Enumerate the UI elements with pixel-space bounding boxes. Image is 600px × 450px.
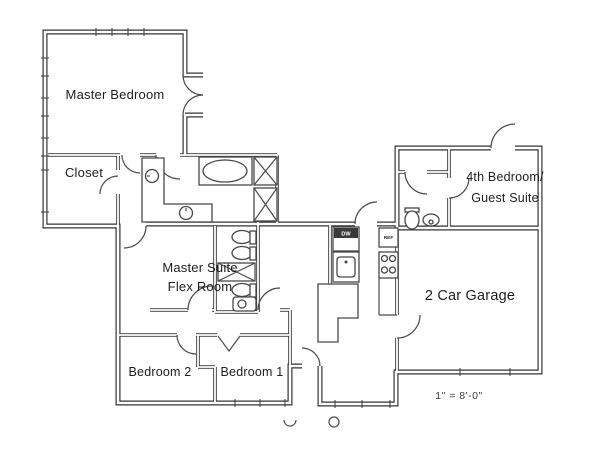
room-label-guest-line2: Guest Suite: [471, 191, 539, 205]
floor-plan-page: DW REF Master Bedroom Closet Master Suit…: [0, 0, 600, 450]
room-label-bedroom1: Bedroom 1: [221, 365, 284, 379]
dishwasher-label: DW: [341, 232, 351, 238]
refrigerator-label: REF: [384, 235, 394, 241]
room-label-bedroom2: Bedroom 2: [129, 365, 192, 379]
circle-symbol: [329, 417, 339, 427]
scale-note: 1" = 8'-0": [435, 390, 482, 402]
bathtub-icon: [199, 157, 252, 185]
room-label-closet: Closet: [65, 165, 103, 180]
kitchen-sink-icon: [333, 252, 359, 282]
floor-plan-canvas: DW REF Master Bedroom Closet Master Suit…: [0, 0, 600, 450]
toilet-icon: [405, 208, 419, 229]
kitchen-island-counter: [318, 284, 358, 342]
room-label-flex-line2: Flex Room: [168, 279, 233, 294]
room-label-flex-line1: Master Suite: [162, 260, 237, 275]
dishwasher: DW: [333, 227, 359, 251]
room-label-garage: 2 Car Garage: [425, 288, 515, 304]
room-label-master-bedroom: Master Bedroom: [66, 87, 165, 102]
refrigerator: REF: [379, 228, 398, 247]
utility-symbols: [284, 417, 339, 427]
sink-icon: [423, 214, 439, 226]
room-label-guest-line1: 4th Bedroom/: [466, 170, 544, 184]
stove-burners-icon: [379, 252, 398, 315]
bifold-door-icon: [218, 336, 240, 351]
arc-symbol: [284, 420, 296, 426]
